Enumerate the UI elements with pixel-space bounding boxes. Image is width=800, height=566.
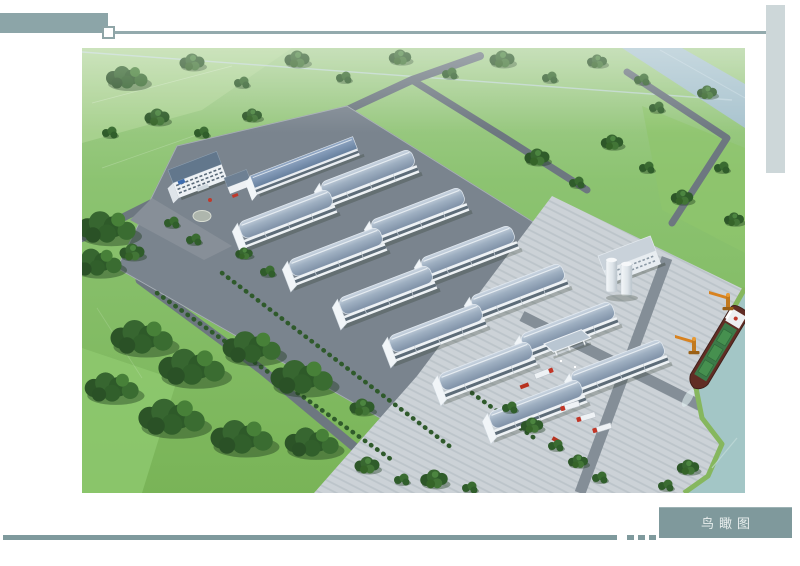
haze-overlay (82, 48, 745, 133)
caption-box: 鸟瞰图 (659, 507, 792, 538)
page: 鸟瞰图 (0, 0, 800, 566)
header-accent-block (0, 13, 108, 33)
aerial-rendering-image (82, 48, 745, 493)
aerial-rendering-svg (82, 48, 745, 493)
caption-text: 鸟瞰图 (696, 517, 755, 530)
bottom-rule (3, 535, 659, 540)
top-rule (112, 31, 766, 34)
side-accent-bar (766, 5, 785, 173)
corner-square-decoration (102, 26, 115, 39)
